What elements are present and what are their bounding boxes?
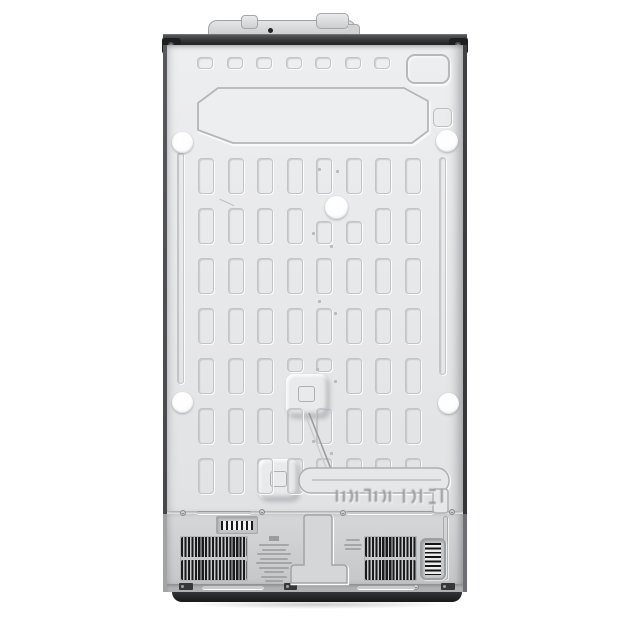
emboss-cell xyxy=(228,158,244,194)
emboss-cell xyxy=(198,208,214,244)
emboss-cell xyxy=(346,221,362,244)
emboss-cell xyxy=(257,358,273,394)
certification-marks xyxy=(340,539,366,559)
emboss-cell xyxy=(228,408,244,444)
label-text-line xyxy=(260,558,288,560)
rivet-dot xyxy=(318,300,321,303)
emboss-cell xyxy=(198,308,214,344)
label-text-line xyxy=(261,576,287,578)
seam-slot-right xyxy=(347,511,433,515)
emboss-top-square xyxy=(315,57,331,69)
emboss-cell xyxy=(257,158,273,194)
rivet-dot xyxy=(318,490,321,493)
emboss-cell xyxy=(316,258,332,294)
emboss-cell xyxy=(316,308,332,344)
emboss-cell xyxy=(346,158,362,194)
label-text-line xyxy=(257,553,291,555)
label-text-line xyxy=(256,562,292,564)
emboss-cell xyxy=(198,158,214,194)
emboss-cell xyxy=(405,358,421,394)
rivet-dot xyxy=(312,232,315,235)
emboss-cell xyxy=(346,458,362,484)
emboss-top-square xyxy=(345,57,361,69)
seam-slot-left xyxy=(197,511,251,515)
emboss-cell xyxy=(346,358,362,394)
label-text-line xyxy=(259,544,289,546)
vent-slats-row xyxy=(365,560,416,580)
emboss-cell xyxy=(228,458,244,494)
plug-hole xyxy=(172,392,193,413)
emboss-cell xyxy=(375,158,391,194)
emboss-cell xyxy=(346,408,362,444)
emboss-cell xyxy=(287,358,303,372)
emboss-cell xyxy=(375,408,391,444)
emboss-cell xyxy=(287,458,303,494)
product-photo-refrigerator-back xyxy=(0,0,620,620)
cert-text-line xyxy=(345,548,361,550)
screw-icon xyxy=(259,509,265,515)
rivet-dot xyxy=(312,440,315,443)
emboss-cell xyxy=(405,258,421,294)
rivet-dot xyxy=(316,368,319,371)
plug-hole xyxy=(172,132,193,153)
label-text-line xyxy=(262,549,286,551)
label-text-line xyxy=(265,580,283,582)
emboss-top-square xyxy=(256,57,272,69)
screw-icon xyxy=(180,510,186,516)
emboss-cell xyxy=(405,308,421,344)
vent-slats-row xyxy=(365,537,416,557)
emboss-cell xyxy=(316,158,332,194)
emboss-cell xyxy=(316,458,332,494)
emboss-cell xyxy=(346,308,362,344)
emboss-cell xyxy=(198,258,214,294)
rivet-dot xyxy=(318,168,321,171)
emboss-cell xyxy=(228,308,244,344)
cert-text-line xyxy=(346,539,360,541)
emboss-cell xyxy=(257,408,273,444)
screw-icon xyxy=(340,510,346,516)
emboss-cell xyxy=(316,408,332,444)
emboss-cell xyxy=(198,358,214,394)
rivet-dot xyxy=(336,170,339,173)
emboss-cell xyxy=(375,358,391,394)
rivet-dot xyxy=(330,452,333,455)
vent-grille-right xyxy=(364,536,417,581)
fastener-dot xyxy=(181,585,184,588)
emboss-cell xyxy=(198,408,214,444)
emboss-cell xyxy=(198,458,214,494)
emboss-cell xyxy=(346,258,362,294)
emboss-cell xyxy=(405,408,421,444)
barcode-icon xyxy=(221,521,253,530)
emboss-cell xyxy=(257,258,273,294)
label-logo-block xyxy=(269,536,279,541)
emboss-top-square xyxy=(374,57,390,69)
fastener-dot xyxy=(443,585,446,588)
rivet-dot xyxy=(331,120,334,123)
emboss-decor-layer xyxy=(0,0,620,620)
emboss-cell xyxy=(375,458,391,484)
emboss-top-square xyxy=(227,57,243,69)
band-fastener-right xyxy=(441,583,455,590)
band-slot-right xyxy=(357,585,415,590)
mini-grille-slats xyxy=(425,543,441,575)
vent-slats-row xyxy=(181,537,247,557)
rating-label xyxy=(251,536,297,582)
emboss-cell xyxy=(257,208,273,244)
barcode-plate xyxy=(216,516,258,534)
emboss-cell xyxy=(287,308,303,344)
emboss-cell xyxy=(287,258,303,294)
emboss-cell xyxy=(316,221,332,244)
emboss-cell xyxy=(287,208,303,244)
emboss-top-square xyxy=(286,57,302,69)
emboss-cell xyxy=(257,308,273,344)
label-text-line xyxy=(264,571,284,573)
vent-slats-row xyxy=(181,560,247,580)
emboss-cell xyxy=(228,358,244,394)
band-fastener-left xyxy=(179,583,193,590)
fastener-dot xyxy=(286,585,289,588)
emboss-cell xyxy=(228,208,244,244)
emboss-cell xyxy=(287,408,303,444)
rivet-dot xyxy=(330,245,333,248)
band-slot-left xyxy=(202,585,264,590)
emboss-cell xyxy=(405,458,421,484)
rivet-dot xyxy=(303,112,306,115)
emboss-cell xyxy=(405,158,421,194)
emboss-cell xyxy=(375,208,391,244)
emboss-cell xyxy=(375,258,391,294)
emboss-top-square xyxy=(197,57,213,69)
plug-hole xyxy=(436,130,458,152)
emboss-cell xyxy=(228,258,244,294)
vent-grille-left xyxy=(180,536,248,581)
plug-hole xyxy=(438,393,459,414)
emboss-cell xyxy=(405,208,421,244)
emboss-cell xyxy=(375,308,391,344)
label-text-line xyxy=(259,567,289,569)
mini-grille-right xyxy=(420,538,446,580)
cert-text-line xyxy=(344,544,362,546)
band-fastener-center xyxy=(284,583,297,590)
screw-icon xyxy=(449,509,455,515)
rivet-dot xyxy=(334,312,337,315)
emboss-cell xyxy=(287,158,303,194)
emboss-cell xyxy=(257,458,273,494)
rivet-dot xyxy=(334,380,337,383)
plug-hole xyxy=(325,196,348,219)
